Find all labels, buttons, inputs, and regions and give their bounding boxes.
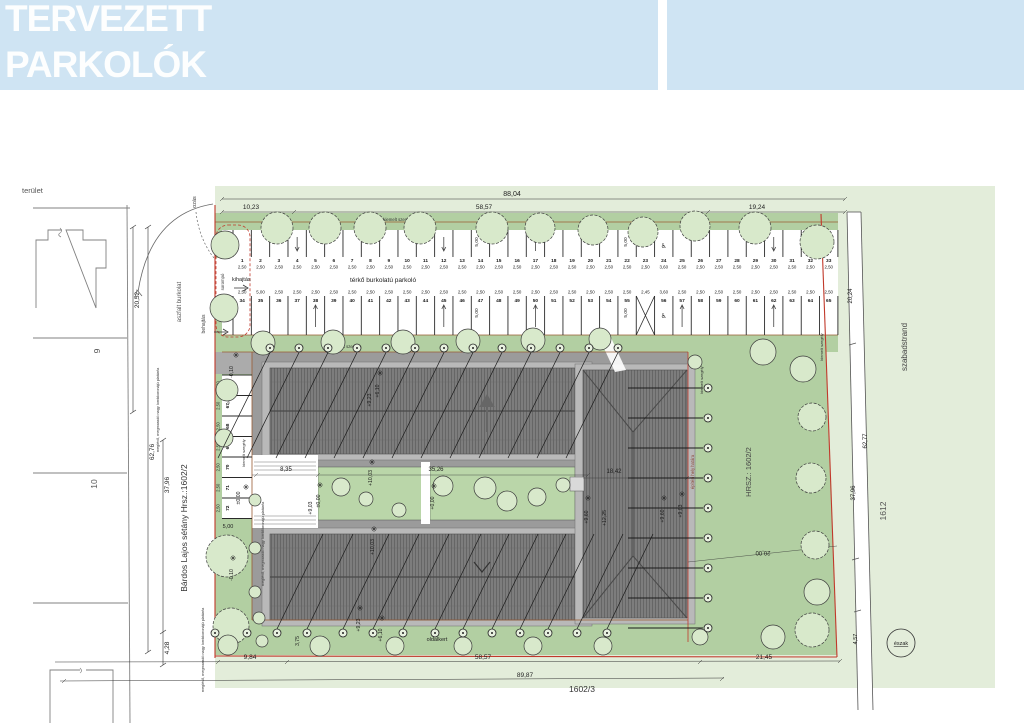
stall-number: 38 xyxy=(313,298,319,304)
stall-number: 45 xyxy=(441,298,447,304)
elevation-label: ±0,00 xyxy=(236,491,242,504)
elevation-label: -0,10 xyxy=(229,569,235,581)
stall-number: 2 xyxy=(259,258,262,264)
stall-number: 33 xyxy=(826,258,832,264)
terko-parkolo-label: térkő burkolatú parkoló xyxy=(350,277,417,284)
stall-number: 17 xyxy=(533,258,539,264)
tree-top-row xyxy=(476,212,508,244)
planting-symbol-dot xyxy=(372,632,374,634)
tree-small xyxy=(256,635,268,647)
dim-37-96-street: 37,96 xyxy=(164,476,171,493)
stall-number: 24 xyxy=(661,258,667,264)
stall-dim: 2,50 xyxy=(550,265,559,270)
stall-number: 59 xyxy=(716,298,722,304)
stall-dim: 2,50 xyxy=(788,265,797,270)
elevation-label: +9,03 xyxy=(308,501,314,514)
tree-top-row xyxy=(739,212,771,244)
stall-dim: 2,50 xyxy=(495,290,504,295)
stall-number: 62 xyxy=(771,298,777,304)
planting-symbol-dot xyxy=(707,627,709,629)
planting-symbol-dot xyxy=(547,632,549,634)
tree-courtyard xyxy=(528,488,546,506)
stall-dim: 5,00 xyxy=(256,290,265,295)
stall-dim: 2,50 xyxy=(458,265,467,270)
elevation-label: +6,10 xyxy=(378,628,384,641)
stall-number: 43 xyxy=(404,298,410,304)
stall-number: 15 xyxy=(496,258,502,264)
planting-symbol-dot xyxy=(472,347,474,349)
dim-19-24: 19,24 xyxy=(749,204,766,211)
header-banner: TERVEZETT PARKOLÓK xyxy=(0,0,1024,90)
stall-dim: 2,50 xyxy=(216,463,221,472)
tree-courtyard xyxy=(359,492,373,506)
planting-symbol-dot xyxy=(306,632,308,634)
planting-symbol-dot xyxy=(356,347,358,349)
tree-small xyxy=(249,542,261,554)
planting-symbol-dot xyxy=(588,347,590,349)
tree-small xyxy=(253,612,265,624)
dim-5-00-aisle: 5,00 xyxy=(623,237,629,247)
kiemelt-szegely-label: kiemelt szegély xyxy=(819,333,824,360)
stall-dim: 2,50 xyxy=(385,265,394,270)
tree-garden xyxy=(688,355,702,369)
stall-dim: 2,50 xyxy=(733,290,742,295)
stall-dim: 2,50 xyxy=(256,265,265,270)
tree-bottom-row xyxy=(386,637,404,655)
stall-number: 7 xyxy=(351,258,354,264)
stall-number: 14 xyxy=(478,258,484,264)
tree-top-row xyxy=(309,212,341,244)
planting-symbol-dot xyxy=(707,477,709,479)
tree-bottom-row xyxy=(524,637,542,655)
tree-bottom-row xyxy=(218,635,238,655)
platanfa-label: meglévő, megmaradó nagy lombkoronájú pla… xyxy=(261,501,265,586)
stall-dim: 2,50 xyxy=(714,290,723,295)
epitesi-hely-label: építési hely határa xyxy=(690,454,695,489)
stall-dim: 2,50 xyxy=(751,290,760,295)
stall-number: 10 xyxy=(404,258,410,264)
stall-dim: 2,50 xyxy=(216,401,221,410)
stall-dim: 2,50 xyxy=(678,265,687,270)
stall-dim: 2,50 xyxy=(366,290,375,295)
planting-symbol-dot xyxy=(707,537,709,539)
parcel-9-label: 9 xyxy=(92,348,102,353)
stall-dim: 2,50 xyxy=(714,265,723,270)
tree-top-row xyxy=(525,213,555,243)
tree-bottom-row xyxy=(454,637,472,655)
stall-number: 4 xyxy=(296,258,299,264)
aszfalt-burkolat-label: aszfalt burkolat xyxy=(177,281,183,322)
behajtas-label: behajtás xyxy=(201,314,207,333)
planting-symbol-dot xyxy=(327,347,329,349)
dim-58-57-top: 58,57 xyxy=(476,204,493,211)
parking-rows-surface xyxy=(222,230,838,335)
stall-number: 47 xyxy=(478,298,484,304)
tree-bottom-row xyxy=(594,637,612,655)
tree-courtyard xyxy=(332,478,350,496)
stall-number: 37 xyxy=(294,298,300,304)
parcel-10-label: 10 xyxy=(89,479,99,489)
stall-dim: 2,50 xyxy=(330,265,339,270)
planting-symbol-dot xyxy=(576,632,578,634)
elevation-label: +9,23 xyxy=(356,618,362,631)
planting-symbol-dot xyxy=(501,347,503,349)
header-divider xyxy=(658,0,667,90)
tree-courtyard xyxy=(556,478,570,492)
tree-left-verge xyxy=(210,294,238,322)
stall-dim: 2,50 xyxy=(678,290,687,295)
page-title-line2: PARKOLÓK xyxy=(5,43,207,85)
tree-top-row xyxy=(628,217,658,247)
stall-dim: 2,50 xyxy=(348,265,357,270)
planting-symbol-dot xyxy=(402,632,404,634)
stall-number: 22 xyxy=(624,258,630,264)
stall-dim: 2,50 xyxy=(513,290,522,295)
stall-dim: 2,50 xyxy=(806,290,815,295)
stall-dim: 2,50 xyxy=(604,290,613,295)
stall-number: 20 xyxy=(588,258,594,264)
oldalkert-label: oldalkert xyxy=(427,637,448,643)
stall-dim: 2,50 xyxy=(385,290,394,295)
elevation-label: -0,10 xyxy=(229,366,235,378)
stall-dim: 2,50 xyxy=(751,265,760,270)
elevation-label: +9,60 xyxy=(660,509,666,522)
planting-symbol-dot xyxy=(617,347,619,349)
planting-symbol-dot xyxy=(214,632,216,634)
elevation-label: +10,03 xyxy=(370,539,376,555)
stall-number: 35 xyxy=(258,298,264,304)
tree-bottom-row xyxy=(310,636,330,656)
stall-dim: 2,50 xyxy=(440,290,449,295)
building-south-wing xyxy=(262,528,592,626)
page-title-line1: TERVEZETT xyxy=(5,0,213,39)
stall-number: 39 xyxy=(331,298,337,304)
stall-number: 6 xyxy=(332,258,335,264)
dim-18-42: 18,42 xyxy=(606,469,622,475)
stall-dim: 2,50 xyxy=(568,290,577,295)
stall-number: 72 xyxy=(225,505,231,511)
stall-dim: 2,50 xyxy=(476,265,485,270)
stall-dim: 2,50 xyxy=(641,265,650,270)
tree-top-row xyxy=(404,212,436,244)
dim-5-00-verge: 5,00 xyxy=(223,524,234,530)
tree-top-row xyxy=(578,215,608,245)
tree-left-verge xyxy=(215,429,233,447)
planting-symbol-dot xyxy=(269,347,271,349)
stall-dim: 2,50 xyxy=(403,290,412,295)
dim-21-45: 21,45 xyxy=(756,654,773,661)
stall-dim: 2,50 xyxy=(788,290,797,295)
tree-garden xyxy=(795,613,829,647)
elevation-label: +12,25 xyxy=(602,510,608,526)
dim-5-00-aisle: 5,00 xyxy=(474,308,480,318)
elevation-label: +9,03 xyxy=(678,504,684,517)
hrsz-label: HRSZ.: 1602/2 xyxy=(744,447,753,497)
stall-dim: 2,50 xyxy=(440,265,449,270)
stall-number: 8 xyxy=(369,258,372,264)
tree-courtyard xyxy=(497,491,517,511)
dim-4-28: 4,28 xyxy=(164,641,171,654)
stall-number: 53 xyxy=(588,298,594,304)
stall-number: 52 xyxy=(569,298,575,304)
stall-dim: 2,50 xyxy=(421,265,430,270)
dim-4-57: 4,57 xyxy=(853,634,859,645)
stall-number: 19 xyxy=(569,258,575,264)
stall-number: 21 xyxy=(606,258,612,264)
tree-top-row xyxy=(261,212,293,244)
kiemelt-szegely-label: kiemelt szegély xyxy=(699,366,704,393)
tree-garden xyxy=(750,339,776,365)
planting-symbol-dot xyxy=(519,632,521,634)
stall-number: 25 xyxy=(679,258,685,264)
stall-dim: 2,50 xyxy=(421,290,430,295)
stall-dim: 2,50 xyxy=(403,265,412,270)
elevation-label: +10,03 xyxy=(368,470,374,486)
elevation-label: +9,60 xyxy=(584,510,590,523)
tree-top-row xyxy=(800,225,834,259)
stall-number: 70 xyxy=(225,464,231,470)
stall-number: 60 xyxy=(734,298,740,304)
stall-number: 5 xyxy=(314,258,317,264)
dim-20-00: 20,00 xyxy=(755,549,771,555)
planting-symbol-dot xyxy=(462,632,464,634)
stall-number: 58 xyxy=(698,298,704,304)
dim-35-26: 35,26 xyxy=(428,467,444,473)
planting-symbol-dot xyxy=(707,447,709,449)
stall-dim: 2,50 xyxy=(824,265,833,270)
platanfa-label: meglévő, megmaradó nagy lombkoronájú pla… xyxy=(156,367,160,452)
ozas-label: ozás xyxy=(192,196,198,208)
stall-number: 27 xyxy=(716,258,722,264)
stall-number: 31 xyxy=(789,258,795,264)
planting-symbol-dot xyxy=(276,632,278,634)
stall-dim: 2,50 xyxy=(311,290,320,295)
stall-dim: 2,50 xyxy=(623,265,632,270)
tree-garden xyxy=(790,356,816,382)
stall-number: 9 xyxy=(387,258,390,264)
tree-garden xyxy=(798,403,826,431)
planting-symbol-dot xyxy=(434,632,436,634)
kiemelt-szegely-label: kiemelt szegély xyxy=(241,439,246,466)
dim-5-00-aisle: 5,00 xyxy=(623,308,629,318)
planting-symbol-dot xyxy=(414,347,416,349)
stall-number: 55 xyxy=(624,298,630,304)
planting-symbol-dot xyxy=(606,632,608,634)
tree-top-row xyxy=(354,212,386,244)
stall-dim: 2,50 xyxy=(769,265,778,270)
stall-dim: 2,50 xyxy=(458,290,467,295)
sorompo-label: sorompó xyxy=(220,273,225,290)
kihajtas-label: kihajtás xyxy=(232,277,251,283)
stall-dim: 2,50 xyxy=(476,290,485,295)
dim-8-35: 8,35 xyxy=(280,467,292,473)
stall-number: 67 xyxy=(225,403,231,409)
stall-number: 1 xyxy=(241,258,244,264)
dim-89-87: 89,87 xyxy=(517,672,534,679)
stall-number: 42 xyxy=(386,298,392,304)
stall-dim: 2,50 xyxy=(216,483,221,492)
stall-number: 46 xyxy=(459,298,465,304)
site-plan-drawing: TERVEZETT PARKOLÓK GDN 20,52 62,76 37,96… xyxy=(0,0,1024,723)
stall-number: 68 xyxy=(225,423,231,429)
parcel-1602-3-label: 1602/3 xyxy=(569,684,595,694)
stall-number: 26 xyxy=(698,258,704,264)
stall-dim: 2,50 xyxy=(696,290,705,295)
stall-number: 36 xyxy=(276,298,282,304)
terulet-label: terület xyxy=(22,186,44,195)
dim-20-24: 20,24 xyxy=(848,288,854,304)
platanfa-label: meglévő, megmaradó nagy lombkoronájú pla… xyxy=(201,607,205,692)
elevation-label: +6,10 xyxy=(375,384,381,397)
stall-dim: 3,60 xyxy=(659,290,668,295)
stall-dim: 2,50 xyxy=(216,504,221,513)
stall-number: 28 xyxy=(734,258,740,264)
stall-number: 57 xyxy=(679,298,685,304)
stall-dim: 3,60 xyxy=(659,265,668,270)
tree-small xyxy=(249,586,261,598)
stall-dim: 2,50 xyxy=(275,265,284,270)
stall-dim: 2,50 xyxy=(531,265,540,270)
stall-number: 56 xyxy=(661,298,667,304)
dim-58-57-bottom: 58,57 xyxy=(475,654,492,661)
planting-symbol-dot xyxy=(491,632,493,634)
stall-number: 54 xyxy=(606,298,612,304)
stall-dim: 2,50 xyxy=(623,290,632,295)
planting-symbol-dot xyxy=(559,347,561,349)
dim-5-00-aisle: 5,00 xyxy=(474,237,480,247)
stall-dim: 2,50 xyxy=(275,290,284,295)
stall-number: 71 xyxy=(225,485,231,491)
elevation-label: +0,00 xyxy=(430,496,436,509)
stall-dim: 2,50 xyxy=(769,290,778,295)
planting-symbol-dot xyxy=(530,347,532,349)
stall-number: 49 xyxy=(514,298,520,304)
stall-number: 40 xyxy=(349,298,355,304)
stall-dim: 2,50 xyxy=(366,265,375,270)
planting-symbol-dot xyxy=(707,507,709,509)
stall-number: 32 xyxy=(808,258,814,264)
tree-garden xyxy=(796,463,826,493)
stall-dim: 2,50 xyxy=(330,290,339,295)
stall-dim: 2,50 xyxy=(495,265,504,270)
stall-dim: 2,50 xyxy=(550,290,559,295)
stall-number: 13 xyxy=(459,258,465,264)
tree-left-verge xyxy=(216,379,238,401)
stall-number: 23 xyxy=(643,258,649,264)
stall-dim: 2,50 xyxy=(293,265,302,270)
wheelchair-icon: ♿ xyxy=(661,243,667,250)
stall-dim: 2,50 xyxy=(348,290,357,295)
stall-dim: 2,50 xyxy=(238,265,247,270)
stall-dim: 2,50 xyxy=(311,265,320,270)
planting-symbol-dot xyxy=(707,387,709,389)
stall-number: 3 xyxy=(277,258,280,264)
tree-courtyard xyxy=(474,477,496,499)
bardos-street-label: Bárdos Lajos sétány Hrsz.:1602/2 xyxy=(179,464,189,592)
stall-number: 16 xyxy=(514,258,520,264)
tree-left-verge xyxy=(206,535,248,577)
planting-symbol-dot xyxy=(246,632,248,634)
dim-62-77: 62,77 xyxy=(863,433,869,449)
stall-number: 48 xyxy=(496,298,502,304)
planting-symbol-dot xyxy=(707,567,709,569)
stall-number: 29 xyxy=(753,258,759,264)
stall-dim: 2,50 xyxy=(293,290,302,295)
dim-88-04: 88,04 xyxy=(503,191,521,198)
dim-9-84: 9,84 xyxy=(244,654,257,661)
tree-garden xyxy=(801,531,829,559)
stall-dim: 2,50 xyxy=(238,290,247,295)
stall-dim: 2,50 xyxy=(824,290,833,295)
tree-top-row xyxy=(211,231,239,259)
stall-dim: 2,50 xyxy=(733,265,742,270)
stall-number: 51 xyxy=(551,298,557,304)
building-east-hip-roof xyxy=(570,364,695,624)
stall-dim: 2,50 xyxy=(568,265,577,270)
stall-dim: 2,50 xyxy=(586,265,595,270)
stall-dim: 2,50 xyxy=(513,265,522,270)
stall-number: 61 xyxy=(753,298,759,304)
elevation-label: ±0,00 xyxy=(316,494,322,507)
stall-dim: 2,50 xyxy=(604,265,613,270)
elevation-label: +9,23 xyxy=(367,393,373,406)
tree-garden xyxy=(804,579,830,605)
dim-10-23: 10,23 xyxy=(243,204,260,211)
north-label: észak xyxy=(894,641,909,647)
stall-number: 44 xyxy=(423,298,429,304)
stall-number: 65 xyxy=(826,298,832,304)
stall-number: 64 xyxy=(808,298,814,304)
stall-number: 18 xyxy=(551,258,557,264)
tree-top-row xyxy=(680,211,710,241)
dim-3-75: 3,75 xyxy=(295,636,301,646)
stall-number: 34 xyxy=(239,298,245,304)
stall-number: 63 xyxy=(789,298,795,304)
planting-symbol-dot xyxy=(342,632,344,634)
dim-37-96-walkway: 37,96 xyxy=(851,485,857,501)
stall-number: 41 xyxy=(368,298,374,304)
planting-symbol-dot xyxy=(707,597,709,599)
tree-garden xyxy=(761,625,785,649)
white-right-margin xyxy=(995,90,1024,723)
stall-number: 11 xyxy=(423,258,428,264)
stall-dim: 2,50 xyxy=(216,422,221,431)
stall-number: 12 xyxy=(441,258,447,264)
planting-symbol-dot xyxy=(707,417,709,419)
planting-symbol-dot xyxy=(385,347,387,349)
parcel-1612-label: 1612 xyxy=(878,501,888,520)
wheelchair-icon: ♿ xyxy=(661,313,667,320)
stall-dim: 2,50 xyxy=(806,265,815,270)
stall-dim: 2,50 xyxy=(696,265,705,270)
szabadstrand-label: szabadstrand xyxy=(900,323,909,371)
stall-dim: 2,50 xyxy=(531,290,540,295)
stall-dim: 2,50 xyxy=(586,290,595,295)
tree-small xyxy=(249,494,261,506)
dim-62-76: 62,76 xyxy=(149,443,156,460)
tree-courtyard xyxy=(392,503,406,517)
stall-dim: 2,45 xyxy=(641,290,650,295)
planting-symbol-dot xyxy=(443,347,445,349)
stall-number: 50 xyxy=(533,298,539,304)
stall-number: 30 xyxy=(771,258,777,264)
planting-symbol-dot xyxy=(298,347,300,349)
